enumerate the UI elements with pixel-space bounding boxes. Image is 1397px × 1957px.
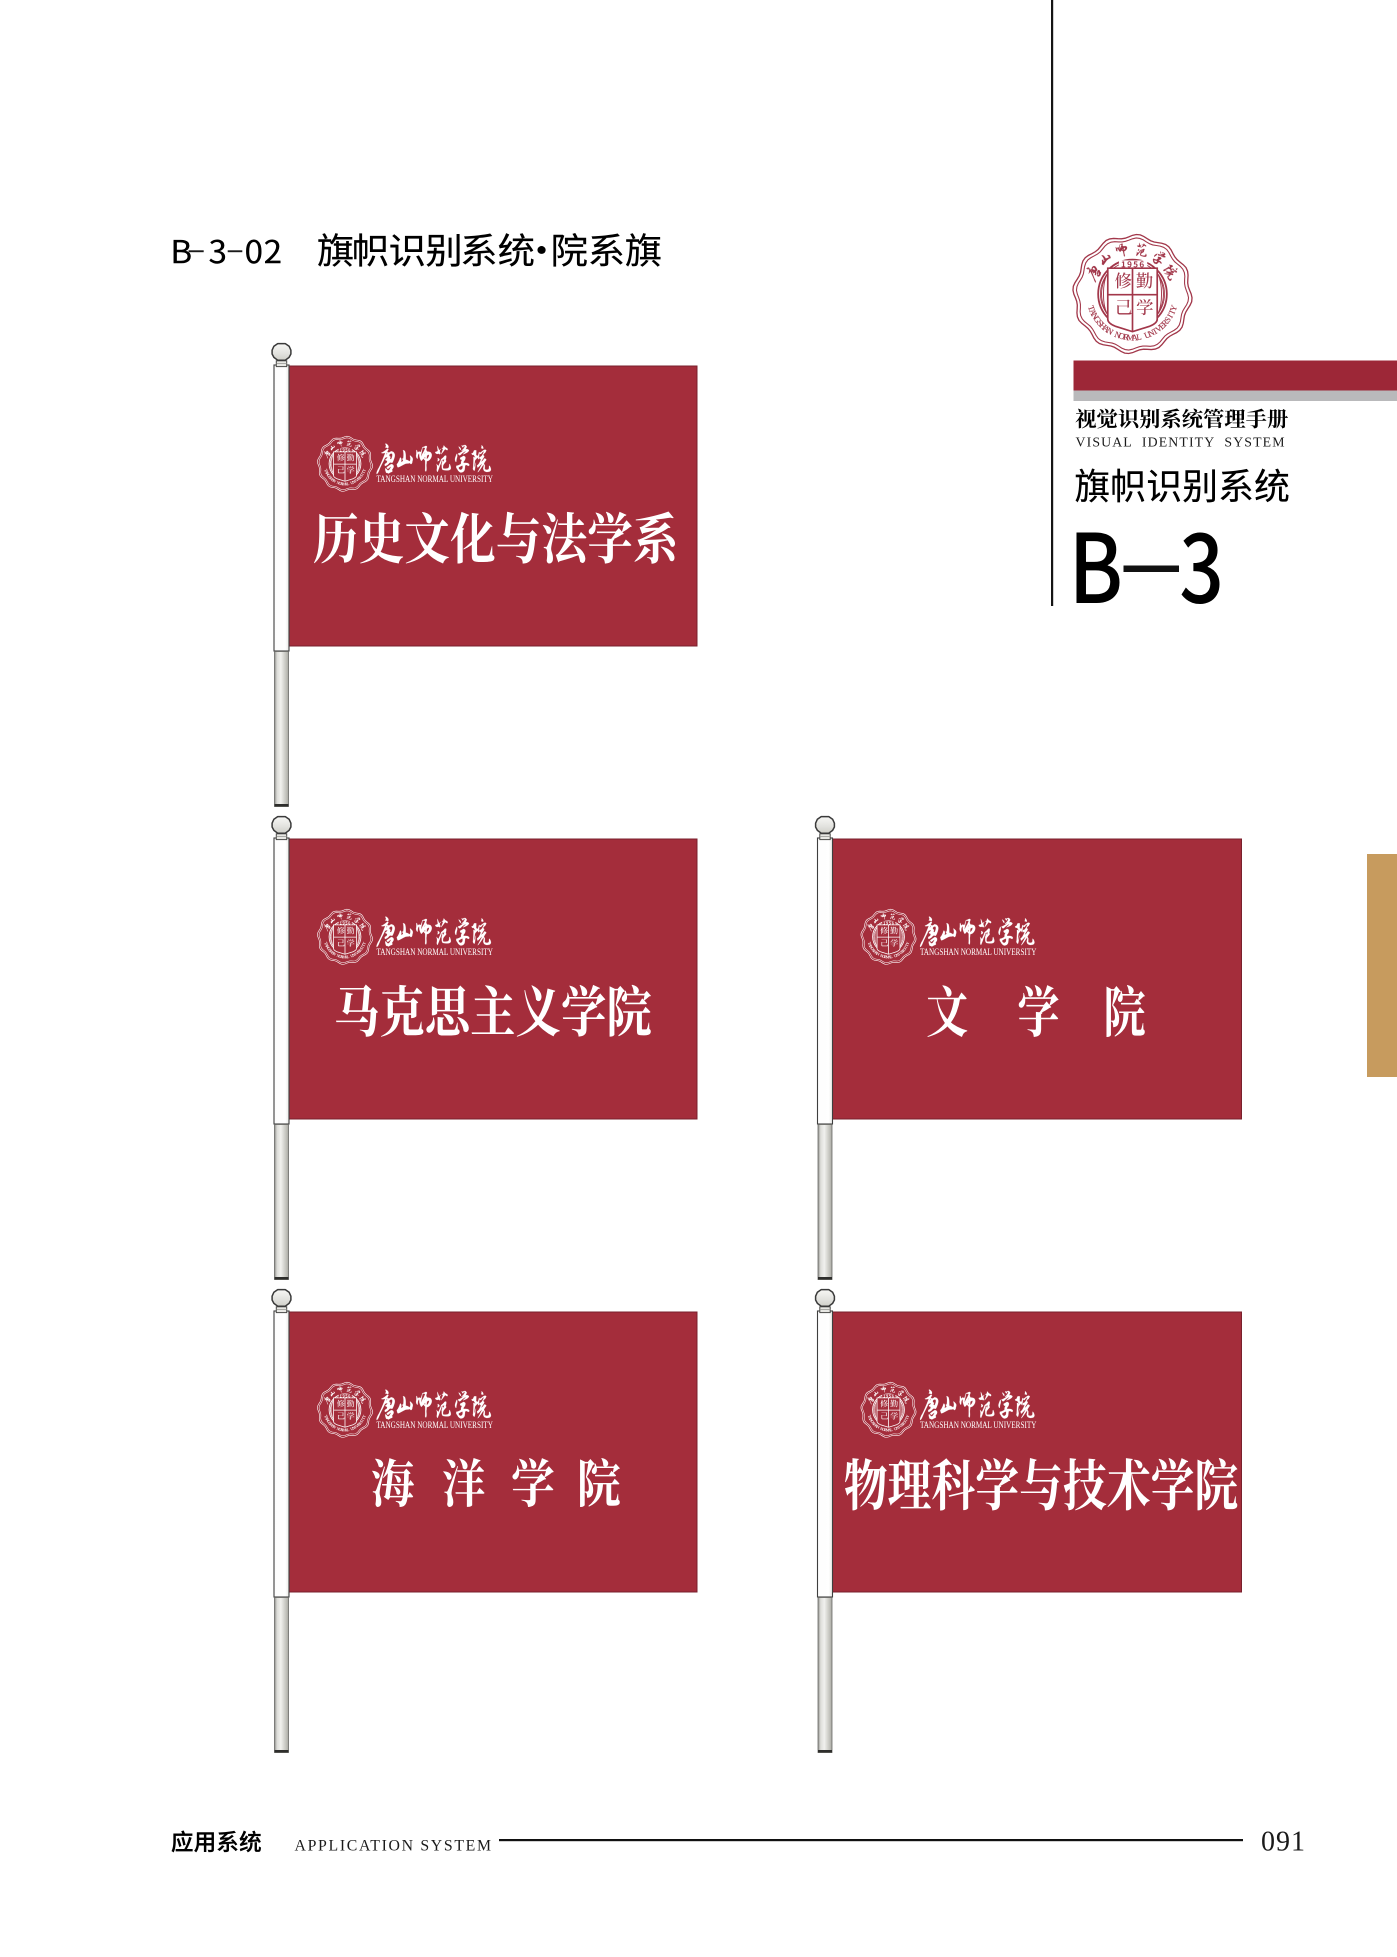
svg-text:APPLICATION SYSTEM: APPLICATION SYSTEM xyxy=(295,1838,492,1855)
svg-text:VISUAL IDENTITY SYSTEM: VISUAL IDENTITY SYSTEM xyxy=(1076,435,1285,450)
svg-text:091: 091 xyxy=(1261,1827,1306,1858)
